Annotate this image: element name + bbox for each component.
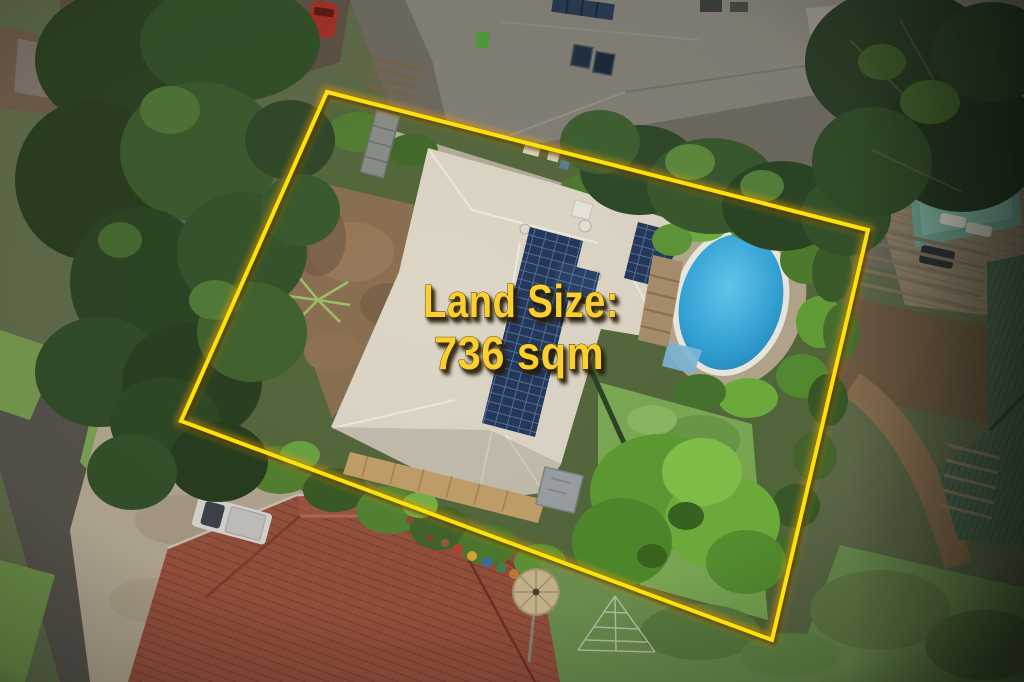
aerial-property-photo: Land Size: 736 sqm [0, 0, 1024, 682]
land-size-overlay: Land Size: 736 sqm [423, 275, 619, 379]
land-size-value: 736 sqm [434, 327, 604, 379]
aerial-scene: Land Size: 736 sqm [0, 0, 1024, 682]
land-size-label: Land Size: [423, 275, 619, 327]
right-shadow-overlay [850, 0, 1024, 682]
